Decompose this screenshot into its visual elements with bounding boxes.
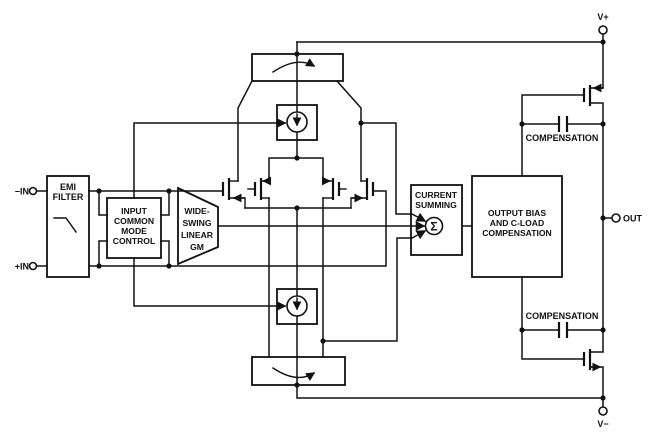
output-bias-label-line1: OUTPUT BIAS	[488, 208, 547, 218]
terminal-circle-vminus	[599, 407, 607, 415]
emi-filter-label-line2: FILTER	[53, 192, 84, 202]
current-summing-label-line1: CURRENT	[415, 190, 458, 200]
junction-dot	[600, 327, 605, 332]
sigma-symbol: Σ	[430, 220, 437, 234]
gm-label-line2: SWING	[182, 218, 211, 228]
bottom-current-mirror-box	[252, 357, 345, 385]
junction-dot	[358, 120, 363, 125]
gm-label-line1: WIDE-	[184, 206, 209, 216]
terminal-circle-in-pos	[30, 263, 37, 270]
output-bias-label-line3: COMPENSATION	[482, 228, 552, 238]
gm-label-line3: LINEAR	[181, 230, 214, 240]
compensation-bottom-label: COMPENSATION	[526, 311, 599, 321]
junction-dot	[519, 327, 524, 332]
top-current-source	[287, 112, 307, 132]
gm-label-line4: GM	[190, 242, 204, 252]
bottom-current-source	[287, 296, 307, 316]
input-cmc-label-line3: MODE	[121, 226, 147, 236]
input-cmc-label-line4: CONTROL	[113, 236, 156, 246]
terminal-label-vplus: V+	[597, 12, 608, 22]
terminal-circle-in-neg	[30, 188, 37, 195]
output-bias-label-line2: AND C-LOAD	[490, 218, 544, 228]
terminal-label-out: OUT	[623, 214, 643, 224]
junction-dot	[96, 188, 101, 193]
terminal-circle-out	[612, 214, 620, 222]
sigma-node: Σ	[426, 218, 443, 235]
junction-dot	[96, 263, 101, 268]
emi-filter-label-line1: EMI	[60, 182, 76, 192]
input-cmc-label-line2: COMMON	[114, 216, 154, 226]
diagram-canvas: Σ	[0, 0, 650, 432]
junction-dot	[294, 205, 299, 210]
terminal-label-vminus: V−	[597, 419, 608, 429]
opamp-block-diagram: Σ	[0, 0, 650, 432]
junction-dot	[166, 188, 171, 193]
junction-dot	[600, 121, 605, 126]
terminal-circle-vplus	[599, 26, 607, 34]
compensation-top-label: COMPENSATION	[526, 133, 599, 143]
junction-dot	[294, 51, 299, 56]
junction-dot	[294, 155, 299, 160]
terminal-label-in-neg: −IN	[15, 187, 29, 197]
input-cmc-label-line1: INPUT	[121, 206, 148, 216]
junction-dot	[320, 338, 325, 343]
terminal-label-in-pos: +IN	[15, 262, 29, 272]
current-summing-label-line2: SUMMING	[415, 200, 457, 210]
junction-dot	[600, 39, 605, 44]
junction-dot	[600, 215, 605, 220]
junction-dot	[166, 263, 171, 268]
junction-dot	[519, 121, 524, 126]
junction-dot	[600, 395, 605, 400]
junction-dot	[294, 382, 299, 387]
